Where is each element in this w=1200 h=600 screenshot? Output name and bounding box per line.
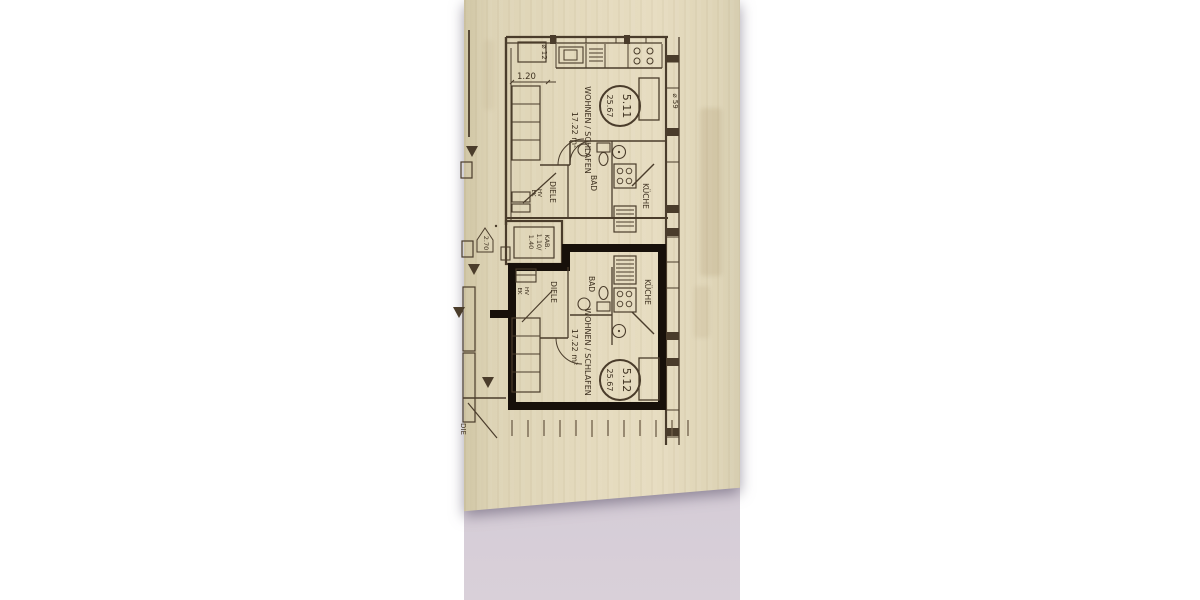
door-arc bbox=[558, 139, 584, 165]
partial-room-label: DIE bbox=[459, 423, 467, 435]
kab-name: KAB. bbox=[543, 234, 551, 249]
kitchen-label: KÜCHE bbox=[641, 183, 650, 209]
kitchen-sink bbox=[559, 47, 583, 63]
wc-bowl bbox=[599, 153, 608, 166]
wc-bowl bbox=[599, 287, 608, 300]
floor-plan-drawing: 2.70 DIE ⌀ 59 ⌀ 12 bbox=[0, 0, 1200, 600]
marker-highlight-512 bbox=[494, 248, 662, 406]
wc-tank bbox=[597, 302, 610, 311]
angled-wall bbox=[632, 312, 654, 334]
unit-512: HV EK DIELE BAD KÜCHE 5.12 25.67 WOHNEN … bbox=[512, 256, 659, 400]
balcony-railing bbox=[512, 420, 688, 437]
door-leaf bbox=[522, 291, 552, 322]
unit-number: 5.12 bbox=[620, 368, 633, 393]
level-mark: 2.70 bbox=[477, 225, 497, 252]
direction-arrow-icon bbox=[482, 377, 494, 388]
wardrobe bbox=[512, 86, 540, 160]
hall-label: DIELE bbox=[548, 181, 557, 203]
hv-label: HV bbox=[523, 287, 529, 295]
ek-label: EK bbox=[530, 189, 536, 196]
living-room-area: 17.22 m² bbox=[570, 329, 579, 365]
stove bbox=[614, 288, 636, 312]
living-room-label: WOHNEN / SCHLAFEN bbox=[583, 308, 592, 395]
bath-label: BAD bbox=[587, 276, 596, 292]
dimension-120: 1.20 bbox=[517, 72, 536, 82]
wardrobe bbox=[512, 318, 540, 392]
diameter-label-top: ⌀ 12 bbox=[540, 44, 548, 59]
unit-number: 5.11 bbox=[620, 94, 633, 119]
unit-area: 25.67 bbox=[605, 369, 614, 392]
level-value: 2.70 bbox=[482, 236, 490, 250]
kitchen-label: KÜCHE bbox=[643, 279, 652, 305]
exterior-wall-right: ⌀ 59 bbox=[665, 37, 679, 445]
wc-tank bbox=[597, 143, 610, 152]
bed bbox=[639, 78, 659, 120]
unit-area: 25.67 bbox=[605, 95, 614, 118]
ek-label: EK bbox=[516, 287, 522, 294]
bed bbox=[639, 358, 659, 400]
kab-dim1: 1.10/ bbox=[535, 234, 543, 251]
kab-dim2: 1.40 bbox=[527, 235, 535, 249]
living-room-label: WOHNEN / SCHLAFEN bbox=[583, 86, 592, 173]
bath-label: BAD bbox=[589, 175, 598, 191]
stove-burners bbox=[634, 48, 653, 64]
diameter-label-right: ⌀ 59 bbox=[671, 93, 679, 108]
corridor-elements: 2.70 DIE bbox=[453, 30, 506, 438]
unit-511: ⌀ 12 1.20 5.11 25.67 WOHNEN / SCHLAFEN 1… bbox=[506, 35, 668, 232]
kab-room: KAB. 1.10/ 1.40 bbox=[501, 221, 562, 264]
direction-arrow-icon bbox=[466, 146, 478, 157]
drainer-hatch bbox=[589, 49, 603, 61]
direction-arrow-icon bbox=[468, 264, 480, 275]
